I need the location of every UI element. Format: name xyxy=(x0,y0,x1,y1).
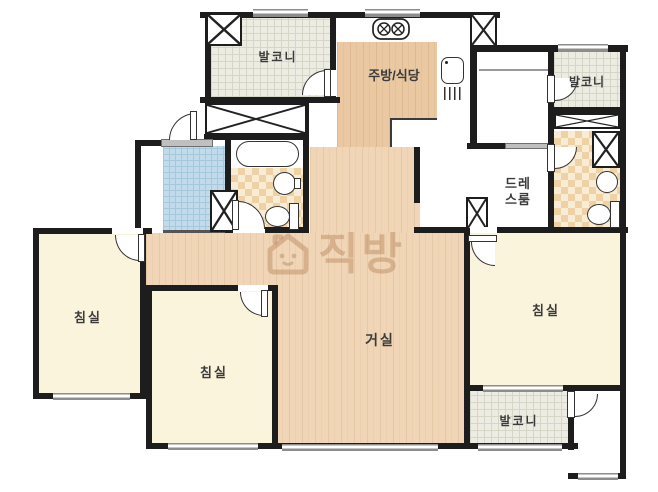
bathtub-icon xyxy=(236,141,299,167)
door-leaf-icon xyxy=(567,391,575,418)
dress-room-label-line1: 드레 xyxy=(499,176,537,192)
bedroom-middle-label: 침실 xyxy=(189,362,239,381)
duct-shaft-icon xyxy=(592,131,620,168)
entry-door-sill xyxy=(161,139,213,147)
window xyxy=(578,473,618,480)
window xyxy=(365,9,420,17)
window xyxy=(53,393,130,400)
duct-shaft-icon xyxy=(470,13,497,47)
closet-divider-line xyxy=(479,69,548,71)
balcony-top-left-label: 발코니 xyxy=(247,48,309,65)
corridor-room-floor xyxy=(477,52,548,145)
wall xyxy=(33,228,39,399)
sliding-door xyxy=(505,143,548,149)
living-room-label: 거실 xyxy=(356,330,404,350)
window xyxy=(282,444,438,451)
bedroom-left-label: 침실 xyxy=(63,307,113,326)
dress-room-label: 드레 스룸 xyxy=(499,176,537,208)
wall xyxy=(200,12,500,18)
wall xyxy=(135,140,141,234)
entry-door-leaf-icon xyxy=(190,111,197,140)
duct-shaft-icon xyxy=(466,197,488,230)
wall xyxy=(414,227,628,233)
door-leaf-icon xyxy=(138,234,145,262)
balcony-bottom-label: 발코니 xyxy=(488,412,550,429)
dress-room-label-line2: 스룸 xyxy=(499,192,537,208)
door-leaf-icon xyxy=(324,69,331,97)
window xyxy=(483,385,563,392)
washbasin-icon xyxy=(273,172,296,195)
watermark-text: 직방 xyxy=(318,218,405,282)
faucet-icon xyxy=(294,178,301,189)
window xyxy=(168,443,258,450)
closet-icon xyxy=(205,103,307,135)
washbasin-icon xyxy=(596,171,618,193)
closet-icon xyxy=(554,113,620,129)
balcony-top-right-label: 발코니 xyxy=(556,73,618,90)
kitchen-counter xyxy=(390,118,437,147)
wall xyxy=(414,147,420,203)
window xyxy=(253,9,308,17)
dish-rack-icon xyxy=(444,87,464,100)
toilet-tank-icon xyxy=(610,201,620,228)
door-gap xyxy=(470,227,497,233)
stove-icon xyxy=(372,18,410,40)
kitchen-label: 주방/식당 xyxy=(356,65,432,84)
wall xyxy=(146,285,152,449)
sink-drain-icon xyxy=(445,61,448,64)
door-leaf-icon xyxy=(468,235,497,242)
wall xyxy=(464,233,470,449)
bedroom-right-label: 침실 xyxy=(521,300,571,319)
toilet-tank-icon xyxy=(289,203,299,230)
toilet-icon xyxy=(265,206,290,227)
door-leaf-icon xyxy=(232,200,239,230)
window xyxy=(478,444,562,451)
window xyxy=(558,44,608,52)
watermark-house-icon xyxy=(262,230,314,276)
duct-shaft-icon xyxy=(206,13,242,46)
door-leaf-icon xyxy=(547,75,555,103)
door-leaf-icon xyxy=(547,144,555,172)
toilet-icon xyxy=(587,204,611,225)
door-leaf-icon xyxy=(261,290,268,317)
floor-plan: 직방 xyxy=(0,0,658,492)
wall xyxy=(272,285,278,449)
